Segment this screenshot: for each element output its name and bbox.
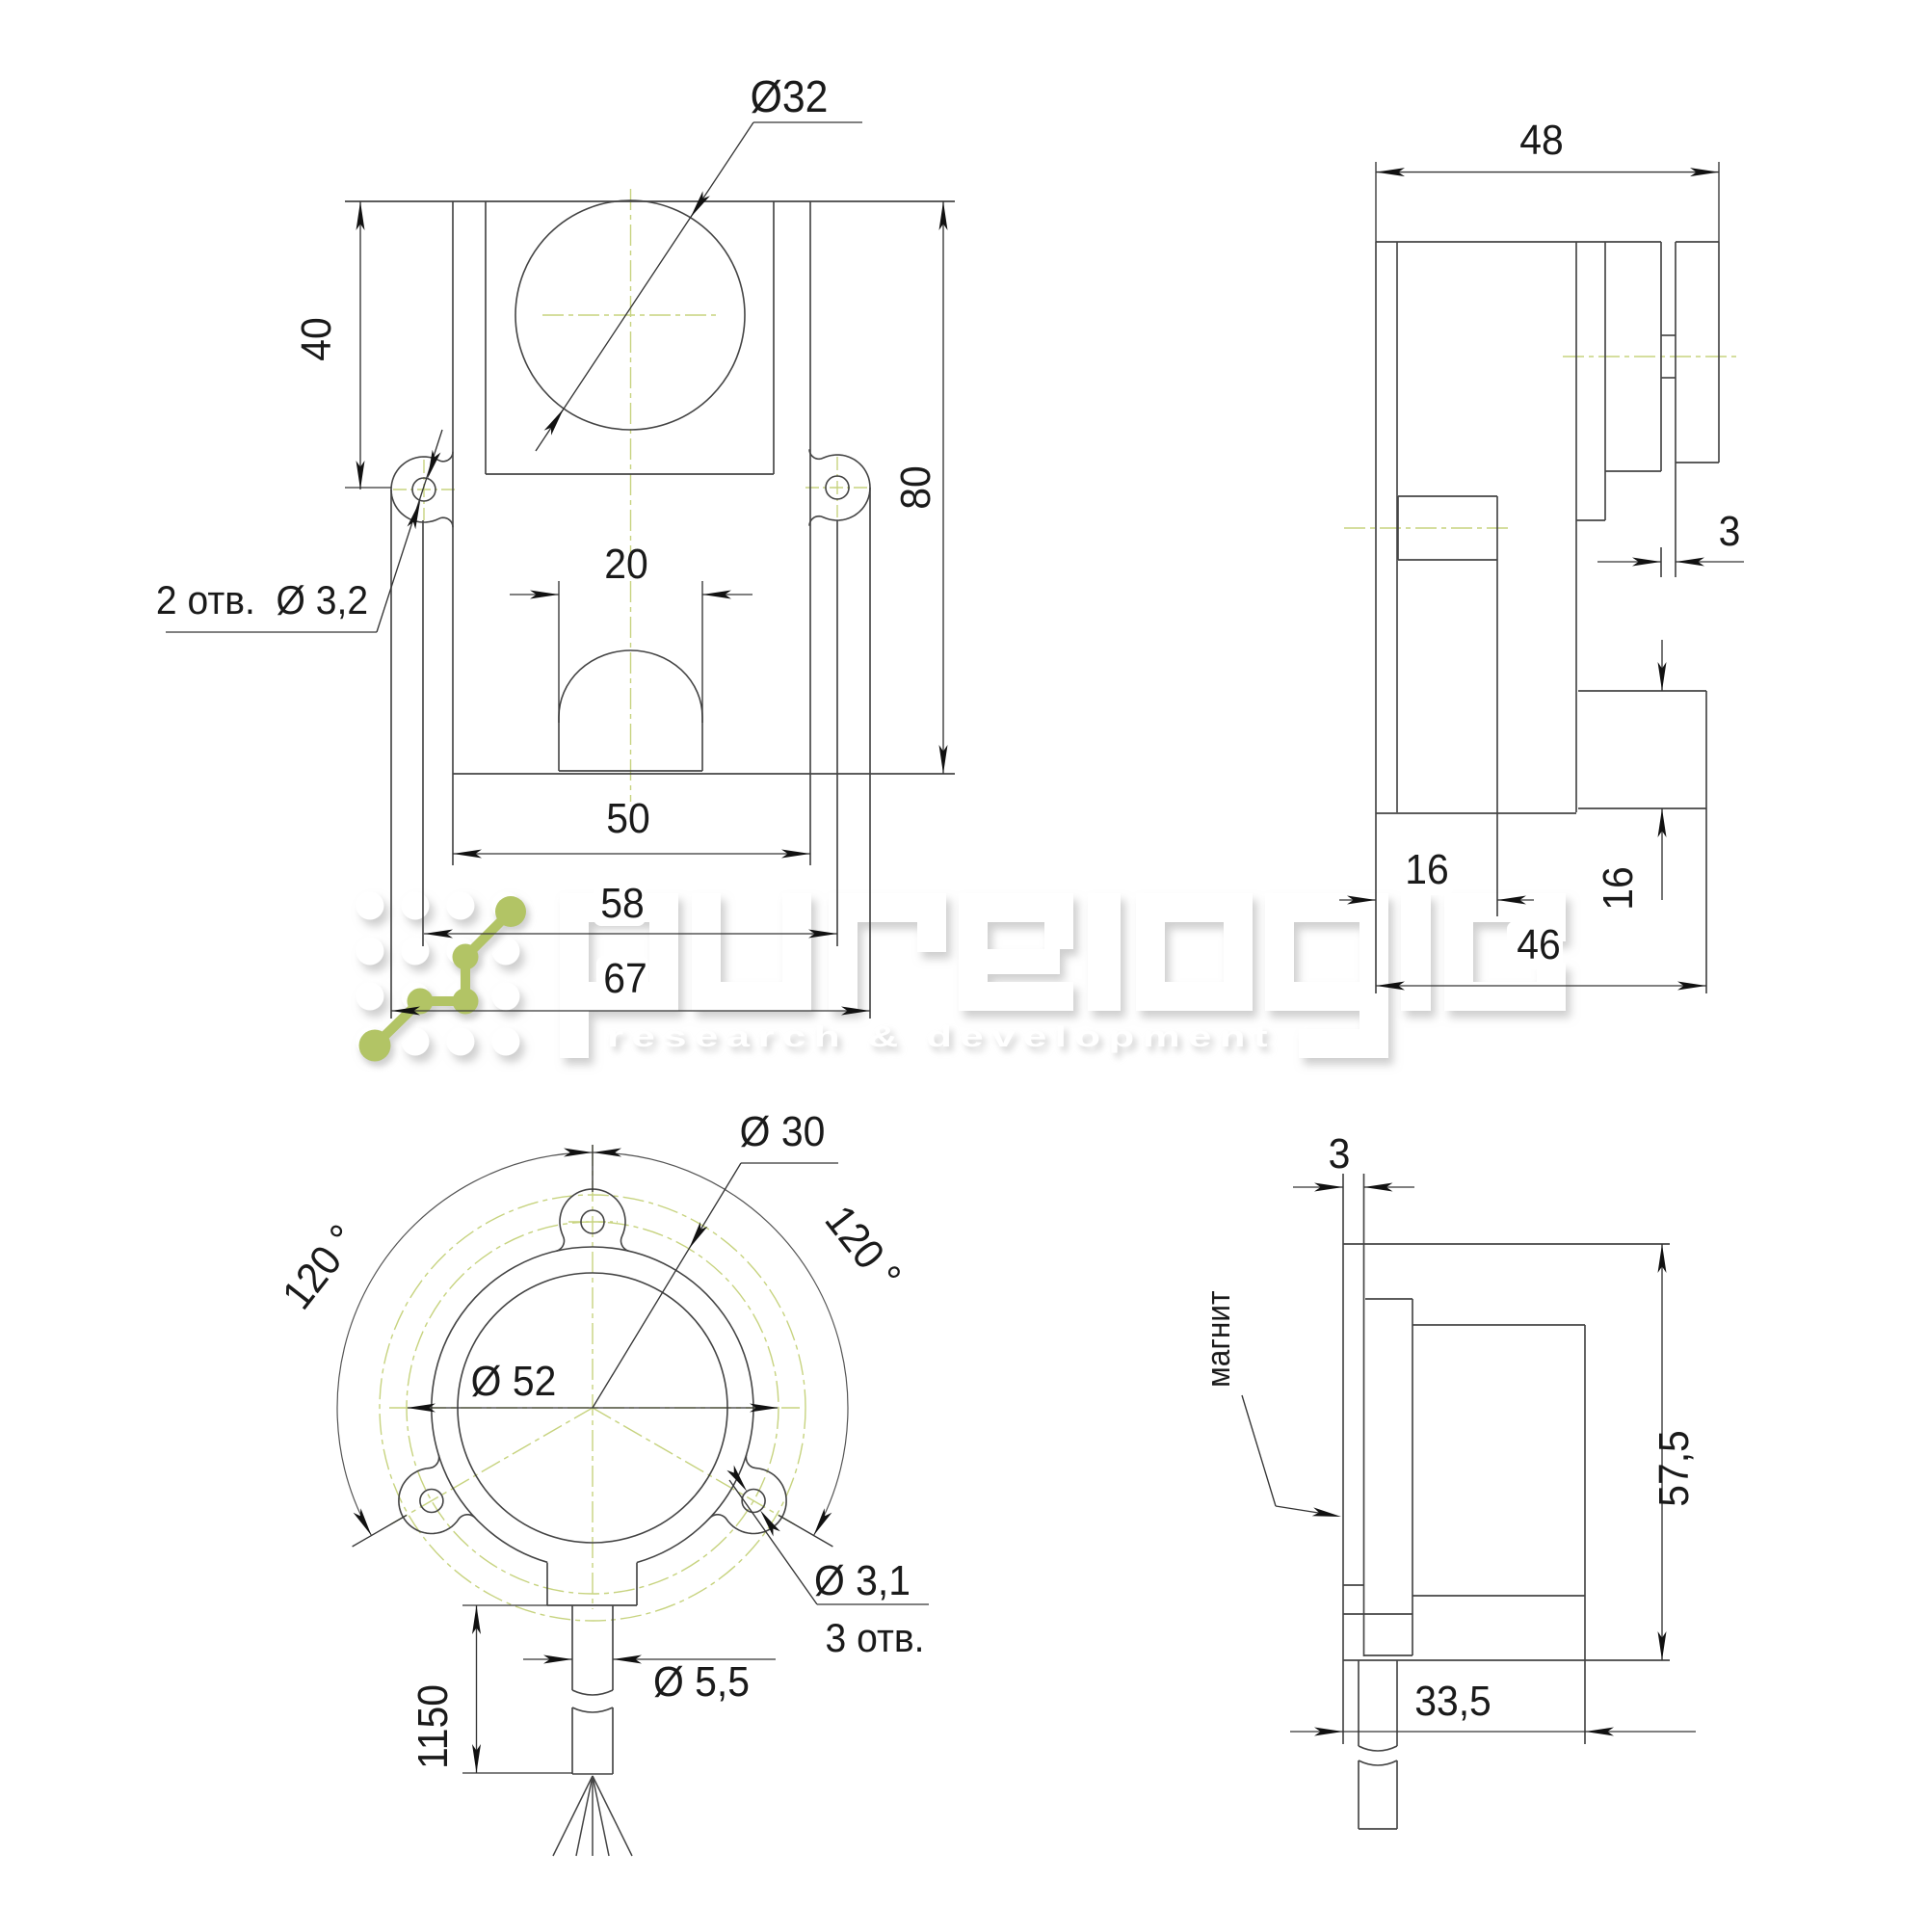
svg-text:research & development: research & development	[607, 1019, 1276, 1053]
svg-text:48: 48	[1519, 118, 1564, 165]
svg-text:46: 46	[1517, 922, 1561, 969]
svg-text:2 отв. Ø 3,2: 2 отв. Ø 3,2	[156, 577, 368, 623]
svg-text:40: 40	[294, 317, 341, 361]
svg-text:3: 3	[1719, 509, 1741, 556]
svg-text:3 отв.: 3 отв.	[826, 1615, 925, 1661]
svg-text:Ø 30: Ø 30	[740, 1109, 826, 1156]
svg-text:67: 67	[603, 956, 647, 1003]
svg-text:16: 16	[1596, 866, 1643, 911]
svg-text:Ø 5,5: Ø 5,5	[653, 1659, 750, 1707]
svg-text:Ø 3,1: Ø 3,1	[814, 1558, 911, 1605]
svg-text:50: 50	[606, 796, 650, 843]
svg-text:магнит: магнит	[1200, 1291, 1236, 1388]
svg-text:57,5: 57,5	[1651, 1430, 1699, 1507]
svg-text:16: 16	[1405, 847, 1449, 894]
svg-text:80: 80	[893, 465, 940, 510]
svg-text:58: 58	[600, 881, 645, 928]
svg-text:Ø 52: Ø 52	[471, 1359, 557, 1406]
svg-text:3: 3	[1329, 1131, 1351, 1178]
svg-text:1150: 1150	[410, 1684, 458, 1769]
svg-text:Ø32: Ø32	[751, 73, 829, 122]
svg-text:20: 20	[604, 542, 648, 589]
svg-text:33,5: 33,5	[1414, 1679, 1491, 1726]
